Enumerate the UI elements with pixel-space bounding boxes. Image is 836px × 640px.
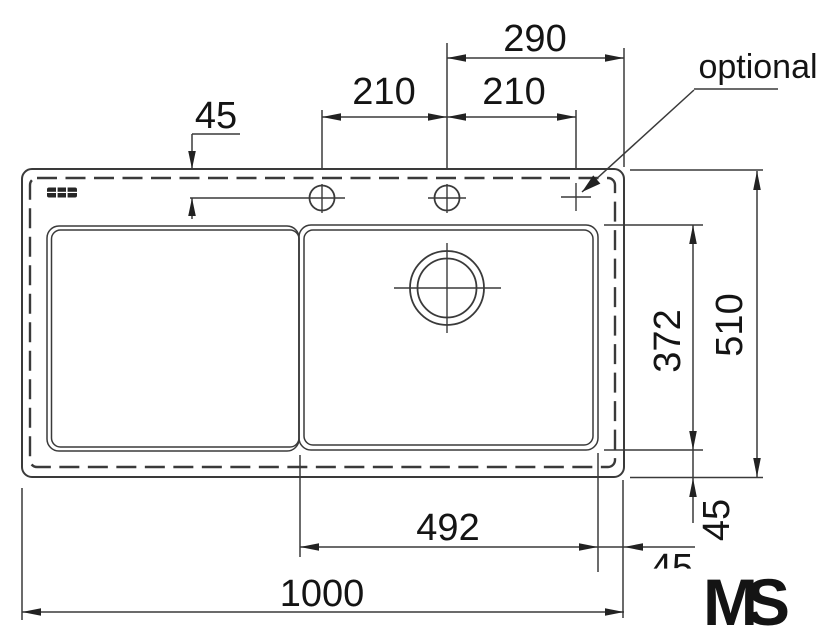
arrowhead: [188, 198, 196, 216]
arrowhead: [447, 113, 466, 121]
arrowhead: [322, 113, 341, 121]
rim-logo-slit: [47, 192, 77, 193]
faucet-hole-1: [190, 184, 345, 213]
arrowhead: [689, 225, 697, 244]
drain-hole: [394, 243, 501, 333]
ms-watermark-logo: M S: [703, 565, 790, 639]
faucet-hole-2: [428, 184, 466, 213]
dim-1000: 1000: [22, 488, 624, 620]
logo-letter-s: S: [746, 565, 790, 639]
dim-45-top: 45: [188, 95, 240, 219]
drainboard-inner-edge: [52, 230, 300, 447]
sink-outline: [22, 169, 624, 477]
rim-logo-mark: [47, 188, 77, 198]
dim-210-pair: 210 210: [322, 71, 576, 169]
basin-inner-edge: [304, 230, 593, 445]
arrowhead: [689, 431, 697, 450]
sink-dimension-drawing: 45 210 210 290 optional: [0, 0, 836, 640]
dim-492-label: 492: [416, 507, 479, 549]
dim-right-side: 372 510 45: [604, 170, 763, 541]
dim-210-left-label: 210: [352, 71, 415, 113]
arrowhead: [188, 151, 196, 169]
drainboard-outer-edge: [47, 226, 299, 451]
arrowhead: [300, 543, 319, 551]
drawing-canvas: 45 210 210 290 optional: [0, 0, 836, 640]
arrowhead: [447, 54, 466, 62]
arrowhead: [605, 54, 624, 62]
mounting-dashed-line: [30, 178, 615, 467]
arrowhead: [753, 171, 761, 190]
arrowhead: [428, 113, 447, 121]
arrowhead: [579, 543, 598, 551]
arrowhead: [689, 478, 697, 497]
dim-510-label: 510: [709, 293, 751, 356]
dim-45-right-label: 45: [696, 499, 738, 541]
sink-outer-rim: [22, 169, 624, 477]
arrowhead: [557, 113, 576, 121]
leader-line: [582, 90, 694, 192]
arrowhead: [624, 543, 643, 551]
arrowhead: [22, 608, 41, 616]
dim-1000-label: 1000: [280, 573, 365, 615]
dim-45-top-label: 45: [195, 95, 237, 137]
drainboard: [47, 226, 299, 451]
dim-290-label: 290: [503, 18, 566, 60]
dim-210-right-label: 210: [482, 71, 545, 113]
arrowhead: [605, 608, 624, 616]
optional-label: optional: [698, 48, 817, 86]
dim-45-bottom-label: 45: [651, 547, 693, 589]
dim-372-label: 372: [647, 309, 689, 372]
arrowhead: [753, 458, 761, 477]
